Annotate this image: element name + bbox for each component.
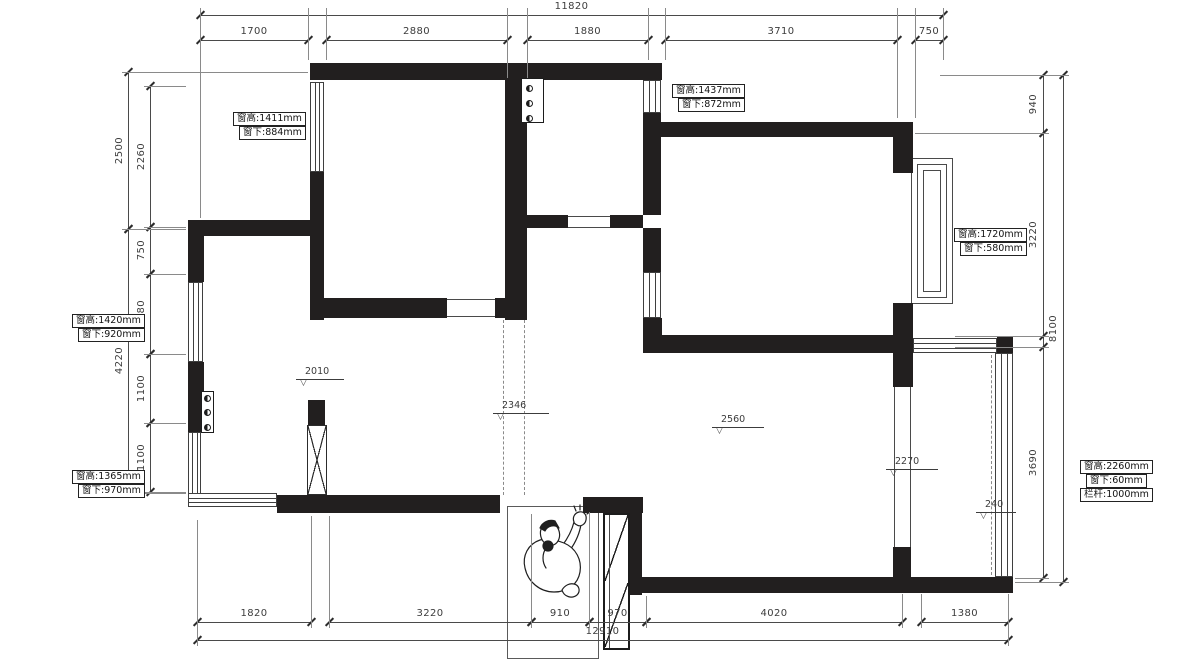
extension-line: [531, 514, 532, 628]
level-marker-triangle-icon: ▽: [497, 413, 504, 422]
window-height-note: 窗高:1365mm: [72, 470, 145, 484]
window-height-note: 窗高:1411mm: [233, 112, 306, 126]
dimension-value: 970: [589, 608, 646, 619]
dimension-value: 1380: [921, 608, 1008, 619]
extension-line: [144, 423, 186, 424]
pipe-riser-circle: [526, 85, 533, 92]
extension-line: [1015, 578, 1049, 579]
level-marker-value: 2560: [721, 415, 745, 425]
pipe-riser-circle: [204, 395, 211, 402]
dimension-value: 1880: [527, 26, 648, 37]
extension-line: [915, 133, 1049, 134]
dimension-value: 750: [136, 240, 147, 260]
pipe-riser-circle: [204, 409, 211, 416]
window-spec-label: 窗高:1720mm 窗下:580mm: [954, 228, 1027, 256]
window-spec-label: 窗高:1420mm 窗下:920mm: [72, 314, 145, 342]
dimension-value: 12910: [197, 626, 1008, 637]
dimension-line: [200, 15, 943, 16]
dimension-line: [646, 622, 902, 623]
extension-line: [507, 8, 508, 78]
window-sill-note: 窗下:884mm: [239, 126, 306, 140]
dimension-value-wrap: 3690: [1026, 347, 1040, 578]
dimension-value: 3710: [665, 26, 897, 37]
dimension-value: 2260: [136, 143, 147, 170]
dimension-line: [329, 622, 531, 623]
pipe-riser-circle: [526, 115, 533, 122]
window-sill-note: 窗下:970mm: [78, 484, 145, 498]
window-sill-note: 窗下:60mm: [1086, 474, 1147, 488]
window-sill-note: 窗下:580mm: [960, 242, 1027, 256]
window-sill-note: 窗下:920mm: [78, 328, 145, 342]
dimension-value: 910: [531, 608, 589, 619]
dimension-line: [150, 86, 151, 492]
window-height-note: 窗高:1437mm: [672, 84, 745, 98]
extension-line: [527, 8, 528, 78]
extension-line: [308, 8, 309, 60]
railing-note: 栏杆:1000mm: [1080, 488, 1153, 502]
extension-line: [921, 594, 922, 628]
window-spec-label: 窗高:2260mm 窗下:60mm 栏杆:1000mm: [1080, 460, 1153, 502]
pipe-riser-circle: [526, 100, 533, 107]
extension-line: [955, 336, 1049, 337]
window-height-note: 窗高:1420mm: [72, 314, 145, 328]
dimension-value: 3220: [1028, 221, 1039, 248]
dimension-value: 1100: [136, 444, 147, 471]
dimension-value: 1100: [136, 375, 147, 402]
extension-line: [665, 8, 666, 60]
level-marker-triangle-icon: ▽: [716, 427, 723, 436]
dimension-line: [589, 622, 646, 623]
extension-line: [144, 354, 186, 355]
dimension-value: 2880: [326, 26, 507, 37]
dimension-value-wrap: 8100: [1046, 75, 1060, 582]
dimension-value-wrap: 2260: [134, 86, 148, 227]
extension-line: [197, 520, 198, 646]
dimension-value: 1700: [200, 26, 308, 37]
extension-line: [955, 347, 1049, 348]
dimension-value-wrap: 1100: [134, 354, 148, 423]
dimension-value: 1820: [197, 608, 311, 619]
dimension-line: [326, 40, 507, 41]
dimension-layer: 1700288018803710750118201820322091097040…: [0, 0, 1200, 660]
dimension-value: 3690: [1028, 449, 1039, 476]
level-marker-value: 2010: [305, 367, 329, 377]
extension-line: [646, 596, 647, 628]
dimension-line: [1043, 75, 1044, 578]
level-marker-triangle-icon: ▽: [890, 469, 897, 478]
dimension-line: [197, 622, 311, 623]
extension-line: [144, 492, 186, 493]
extension-line: [144, 227, 186, 228]
dimension-value-wrap: 4220: [112, 229, 126, 493]
extension-line: [940, 75, 1069, 76]
dimension-line: [915, 40, 943, 41]
extension-line: [326, 8, 327, 60]
extension-line: [122, 72, 308, 73]
level-marker-triangle-icon: ▽: [300, 379, 307, 388]
extension-line: [897, 8, 898, 118]
extension-line: [1008, 594, 1009, 646]
extension-line: [943, 8, 944, 60]
pipe-riser-circle: [204, 424, 211, 431]
extension-line: [122, 229, 186, 230]
dimension-value: 8100: [1048, 315, 1059, 342]
dimension-line: [921, 622, 1008, 623]
level-marker-value: 240: [985, 500, 1003, 510]
dimension-line: [1063, 75, 1064, 582]
extension-line: [589, 512, 590, 628]
dimension-line: [197, 640, 1008, 641]
dimension-value: 750: [915, 26, 943, 37]
level-marker-value: 2270: [895, 457, 919, 467]
extension-line: [648, 8, 649, 60]
extension-line: [902, 594, 903, 628]
extension-line: [144, 86, 186, 87]
window-spec-label: 窗高:1437mm 窗下:872mm: [672, 84, 745, 112]
extension-line: [329, 516, 330, 628]
dimension-value: 4020: [646, 608, 902, 619]
dimension-line: [531, 622, 589, 623]
dimension-line: [200, 40, 308, 41]
extension-line: [1015, 582, 1069, 583]
dimension-value: 940: [1028, 94, 1039, 114]
window-spec-label: 窗高:1411mm 窗下:884mm: [233, 112, 306, 140]
dimension-line: [665, 40, 897, 41]
dimension-value-wrap: 750: [134, 227, 148, 274]
extension-line: [915, 8, 916, 118]
window-height-note: 窗高:2260mm: [1080, 460, 1153, 474]
extension-line: [144, 274, 186, 275]
dimension-value-wrap: 940: [1026, 75, 1040, 133]
dimension-line: [527, 40, 648, 41]
dimension-line: [128, 72, 129, 493]
dimension-value-wrap: 3220: [1026, 133, 1040, 336]
dimension-value: 11820: [200, 1, 943, 12]
dimension-value: 4220: [114, 347, 125, 374]
extension-line: [200, 8, 201, 218]
floor-plan-canvas: 1700288018803710750118201820322091097040…: [0, 0, 1200, 660]
dimension-value: 3220: [329, 608, 531, 619]
level-marker-triangle-icon: ▽: [980, 512, 987, 521]
window-sill-note: 窗下:872mm: [678, 98, 745, 112]
window-spec-label: 窗高:1365mm 窗下:970mm: [72, 470, 145, 498]
level-marker-value: 2346: [502, 401, 526, 411]
dimension-value-wrap: 2500: [112, 72, 126, 229]
extension-line: [311, 516, 312, 628]
dimension-value: 2500: [114, 137, 125, 164]
window-height-note: 窗高:1720mm: [954, 228, 1027, 242]
